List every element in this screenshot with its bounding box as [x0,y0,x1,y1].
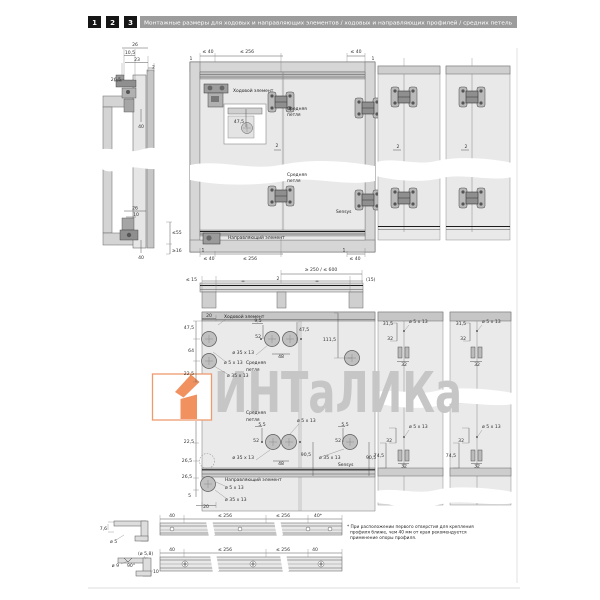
dim-32: 32 [386,438,392,444]
dim-2: 2 [152,65,155,71]
dim-20: 20 [206,313,212,319]
dim-22-5: 22,5 [184,439,194,445]
dim-48: 48 [278,461,284,467]
dim-32: 32 [401,464,407,470]
dim-hole5: ø 5 x 13 [482,424,501,430]
dim-hole5: ø 5 x 13 [409,319,428,325]
dim-47-5: 47,5 [299,327,309,333]
dim-64: 64 [188,348,194,354]
dim-26-5: 26,5 [111,77,121,83]
dim-52: 52 [335,438,341,444]
dim-le40: ≤ 40 [203,256,214,262]
dim-1: 1 [190,56,193,62]
dim-hole35: ø 35 x 13 [232,455,254,461]
dim-2: 2 [465,144,468,150]
dim-40: 40 [169,547,175,553]
dim-1: 1 [343,248,346,254]
header: 1 2 3 Монтажные размеры для ходовых и на… [88,16,517,28]
dim-5: 5 [188,493,191,499]
dim-range: ≥ 250 / ≤ 600 [305,267,338,273]
label-guide-element: Направляющий элемент [225,476,282,483]
step-number: 3 [128,19,133,27]
label-running-element: Ходовой элемент [233,87,274,94]
dim-31-5: 31,5 [383,321,393,327]
label-middle-hinge: петля [246,368,260,373]
dim-ge16: ≥16 [172,248,182,254]
dim-32: 32 [460,336,466,342]
dim-le256: ≤ 256 [218,513,232,519]
dim-90deg: 90° [127,563,135,569]
dim-2: 2 [277,276,280,282]
dim-2: 2 [276,143,279,149]
page-title: Монтажные размеры для ходовых и направля… [144,20,512,27]
dim-23: 23 [134,57,140,63]
dim-hole35: ø 35 x 13 [232,350,254,356]
dim-le40: ≤ 40 [202,49,213,55]
label-guide-element: Направляющий элемент [228,234,285,241]
dim-10: 10 [153,569,159,575]
dim-le40: ≤ 40 [350,49,361,55]
dim-40-star: 40* [314,513,323,519]
dim-7-6: 7,6 [100,526,107,532]
dim-eq: = [315,280,319,285]
label-middle-hinge: петля [287,179,301,184]
dim-26: 26 [132,206,138,212]
dim-15-paren: (15) [366,277,376,283]
dim-eq: = [241,280,245,285]
dim-90-5: 90,5 [301,452,311,458]
label-middle-hinge: Средняя [287,172,307,178]
step-number: 1 [92,19,97,27]
dim-26-5: 26,5 [182,458,192,464]
dim-31-5: 31,5 [456,321,466,327]
dim-32: 32 [474,362,480,368]
dim-le256: ≤ 256 [218,547,232,553]
label-sensys: Sensys [338,462,354,468]
dim-22-5: 22,5 [184,371,194,377]
footnote-line: профиля ближе, чем 40 мм от края рекомен… [350,530,467,536]
label-middle-hinge: петля [287,113,301,118]
label-middle-hinge: Средняя [246,360,266,366]
dim-le256: ≤ 256 [243,256,257,262]
dim-26: 26 [132,42,138,48]
dim-20: 20 [203,504,209,510]
dim-hole5: ø 5 x 13 [297,418,316,424]
technical-drawing: ИНТаЛИКа 26 10,5 23 2 26,5 40 26 10 ≤55 … [0,0,600,600]
dim-32: 32 [458,438,464,444]
footnote-line: * При расположении первого отверстия для… [347,524,474,530]
label-middle-hinge: Средняя [246,410,266,416]
dim-32: 32 [474,464,480,470]
catalog-page: ИНТаЛИКа 26 10,5 23 2 26,5 40 26 10 ≤55 … [0,0,600,600]
label-sensys: Sensys [336,209,352,215]
dim-5-5: 5,5 [258,422,265,428]
dim-52: 52 [255,334,261,340]
dim-40: 40 [138,124,144,130]
dim-hole5: ø 5 x 13 [224,360,243,366]
dim-1: 1 [372,56,375,62]
dim-dia5: ø 5 [110,539,117,545]
section-side-view [98,70,162,248]
section-front-elevation [190,62,381,252]
dim-47-5: 47,5 [234,119,244,125]
dim-52: 52 [253,438,259,444]
dim-1: 1 [202,248,205,254]
dim-40: 40 [169,513,175,519]
dim-hole5: ø 5 x 13 [225,485,244,491]
dim-40: 40 [312,547,318,553]
dim-le256: ≤ 256 [276,547,290,553]
dim-32: 32 [401,362,407,368]
dim-dia5-8: (ø 5,8) [138,551,153,557]
dim-le55: ≤55 [172,230,182,236]
dim-hole5: ø 5 x 13 [482,319,501,325]
dim-26-5: 26,5 [182,474,192,480]
dim-74-5: 74,5 [446,453,456,459]
dim-9-5: 9,5 [254,318,261,324]
footnote-line: применение опоры профиля. [350,535,416,541]
label-middle-hinge: Средняя [287,106,307,112]
dim-32: 32 [387,336,393,342]
dim-2: 2 [397,144,400,150]
dim-74-5: 74,5 [374,453,384,459]
dim-hole5: ø 5 x 13 [409,424,428,430]
dim-10: 10 [133,212,139,218]
dim-hole35: ø 35 x 13 [227,373,249,379]
dim-le256: ≤ 256 [276,513,290,519]
dim-40: 40 [138,255,144,261]
dim-10-5: 10,5 [125,50,135,56]
dim-48: 48 [278,354,284,360]
dim-le256: ≤ 256 [240,49,254,55]
dim-le15: ≤ 15 [186,277,197,283]
dim-hole35: ø 35 x 13 [319,455,341,461]
dim-47-5: 47,5 [184,325,194,331]
dim-hole35: ø 35 x 13 [225,497,247,503]
dim-dia9: ø 9 [112,563,119,569]
step-number: 2 [110,19,115,27]
dim-le40: ≤ 40 [349,256,360,262]
dim-5-5: 5,5 [341,422,348,428]
dim-111-5: 111,5 [323,337,336,343]
